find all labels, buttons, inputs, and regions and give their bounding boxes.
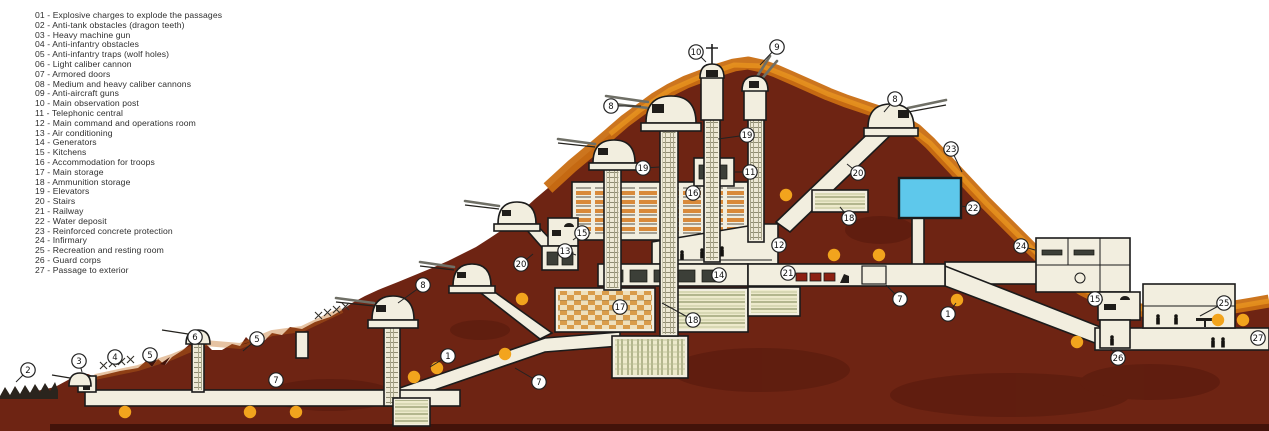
- callout-number: 8: [892, 95, 897, 105]
- dragon-teeth-icon: [0, 382, 58, 399]
- callout-number: 24: [1016, 242, 1027, 252]
- callout-number: 19: [638, 164, 649, 174]
- armored-door-frame: [862, 266, 886, 284]
- callout-number: 15: [577, 229, 588, 239]
- callout-number: 23: [946, 145, 957, 155]
- callout-number: 18: [844, 214, 855, 224]
- callout-number: 1: [445, 352, 450, 362]
- callout-number: 7: [536, 378, 541, 388]
- racks-icon: [615, 339, 685, 375]
- resting-figure: [1156, 314, 1160, 324]
- explosive-charge-dot: [408, 371, 420, 383]
- explosive-charge-dot: [499, 348, 511, 360]
- callout-number: 3: [76, 357, 81, 367]
- legend: 01 - Explosive charges to explode the pa…: [35, 11, 222, 276]
- callout-number: 20: [853, 169, 864, 179]
- walking-figure: [1221, 337, 1225, 347]
- explosive-charge-dot: [951, 294, 963, 306]
- callout-number: 14: [714, 271, 725, 281]
- callout-number: 9: [774, 43, 779, 53]
- shelves-icon: [395, 400, 428, 424]
- callout-number: 7: [897, 295, 902, 305]
- explosive-charge-dot: [431, 362, 443, 374]
- callout-number: 8: [420, 281, 425, 291]
- explosive-charge-dot: [119, 406, 131, 418]
- callout-number: 10: [691, 48, 702, 58]
- observation-post: [700, 44, 724, 120]
- ladder-icon: [386, 320, 398, 404]
- callout-number: 20: [516, 260, 527, 270]
- explosive-charge-dot: [1237, 314, 1249, 326]
- callout-number: 19: [742, 131, 753, 141]
- callout-number: 4: [112, 353, 117, 363]
- shelves-icon: [751, 290, 797, 313]
- callout-number: 12: [774, 241, 785, 251]
- callout-number: 11: [745, 168, 756, 178]
- cannon-turret: [465, 201, 540, 231]
- callout-number: 25: [1219, 299, 1230, 309]
- shelves-icon: [815, 193, 865, 209]
- callout-number: 17: [615, 303, 626, 313]
- machine-gun-dome: [52, 373, 91, 386]
- light-cannon-turret: [162, 330, 210, 344]
- explosive-charge-dot: [516, 293, 528, 305]
- callout-number: 27: [1253, 334, 1264, 344]
- callout-number: 7: [273, 376, 278, 386]
- mountain-base-strip: [50, 424, 1269, 431]
- callout-number: 18: [688, 316, 699, 326]
- explosive-charge-dot: [828, 249, 840, 261]
- callout-number: 22: [968, 204, 979, 214]
- explosive-charge-dot: [780, 189, 792, 201]
- callout-number: 16: [688, 189, 699, 199]
- guard-room: [1100, 320, 1130, 348]
- guard-figure: [1110, 335, 1114, 345]
- operator-figure: [680, 250, 684, 260]
- water-pipe: [912, 217, 924, 265]
- callout-number: 1: [945, 310, 950, 320]
- resting-figure: [1174, 314, 1178, 324]
- crates-icon: [558, 291, 652, 329]
- retaining-wall: [296, 332, 308, 358]
- callout-number: 5: [254, 335, 259, 345]
- explosive-charge-dot: [290, 406, 302, 418]
- explosive-charge-dot: [244, 406, 256, 418]
- explosive-charge-dot: [1071, 336, 1083, 348]
- fortress-cutaway-diagram: 01 - Explosive charges to explode the pa…: [0, 0, 1269, 431]
- explosive-charge-dot: [873, 249, 885, 261]
- walking-figure: [1211, 337, 1215, 347]
- callout-number: 2: [25, 366, 30, 376]
- legend-item: 27 - Passage to exterior: [35, 266, 222, 276]
- callout-number: 26: [1113, 354, 1124, 364]
- callout-number: 6: [192, 333, 197, 343]
- callout-number: 21: [783, 269, 794, 279]
- ladder-icon: [194, 344, 202, 390]
- callout-number: 8: [608, 102, 613, 112]
- callout-number: 15: [1090, 295, 1101, 305]
- explosive-charge-dot: [1212, 314, 1224, 326]
- callout-number: 13: [560, 247, 571, 257]
- callout-number: 5: [147, 351, 152, 361]
- water-deposit-tank: [899, 178, 961, 218]
